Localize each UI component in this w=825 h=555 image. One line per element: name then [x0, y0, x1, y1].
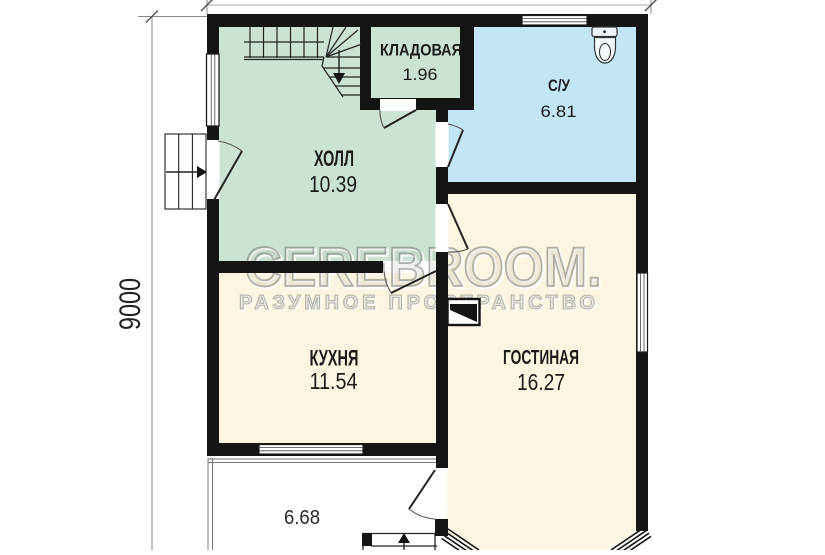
svg-text:10.39: 10.39	[309, 171, 357, 197]
svg-text:1.96: 1.96	[403, 65, 438, 84]
svg-text:КУХНЯ: КУХНЯ	[310, 346, 359, 371]
svg-text:6.81: 6.81	[541, 102, 577, 121]
svg-text:КЛАДОВАЯ: КЛАДОВАЯ	[380, 41, 462, 60]
svg-text:16.27: 16.27	[517, 369, 565, 395]
svg-text:11.54: 11.54	[310, 368, 358, 394]
svg-text:9000: 9000	[114, 278, 147, 330]
svg-text:ХОЛЛ: ХОЛЛ	[314, 146, 354, 171]
svg-text:РАЗУМНОЕ ПРОСТРАНСТВО: РАЗУМНОЕ ПРОСТРАНСТВО	[239, 292, 595, 314]
svg-text:ГОСТИНАЯ: ГОСТИНАЯ	[503, 347, 579, 369]
svg-text:С/У: С/У	[548, 76, 570, 95]
svg-text:6.68: 6.68	[284, 507, 320, 529]
